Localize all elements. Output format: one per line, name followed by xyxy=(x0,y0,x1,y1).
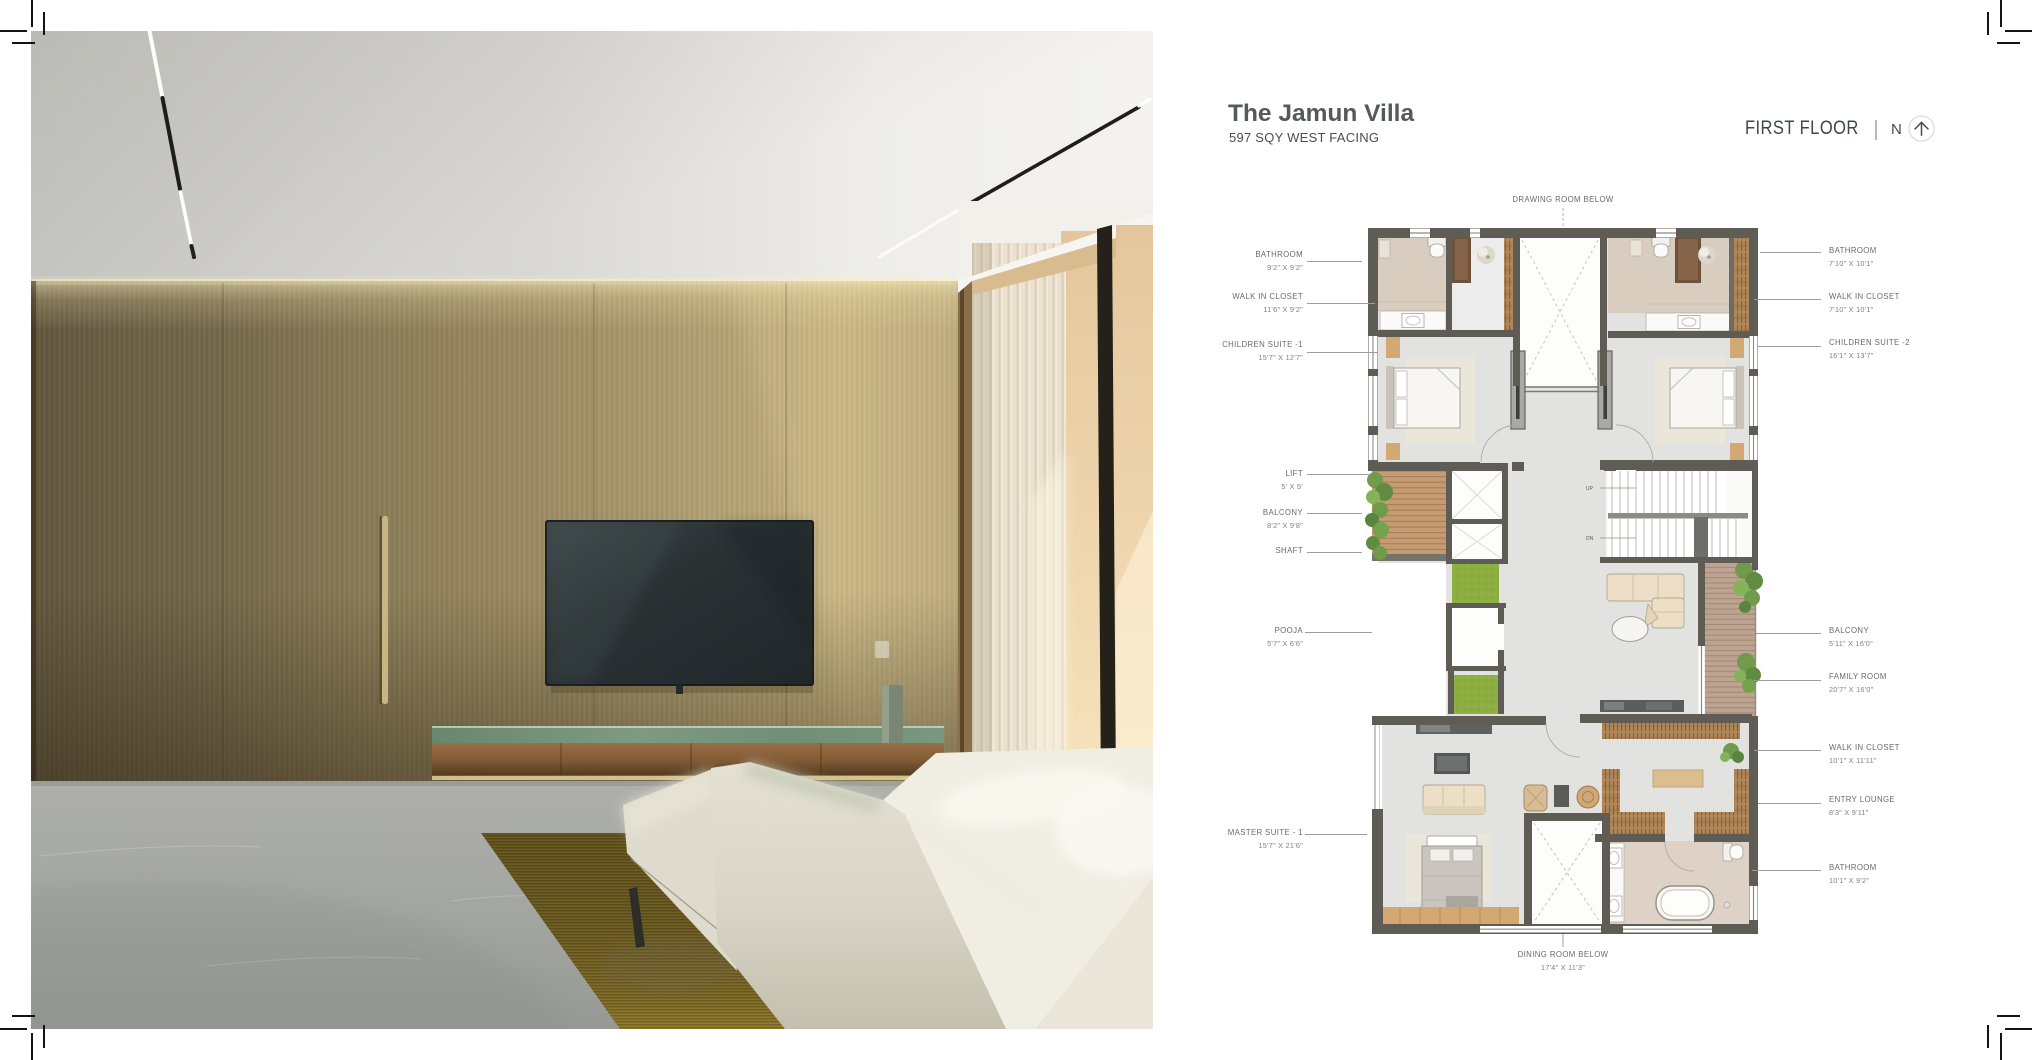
svg-text:UP: UP xyxy=(1586,486,1594,492)
svg-text:DN: DN xyxy=(1586,536,1594,542)
